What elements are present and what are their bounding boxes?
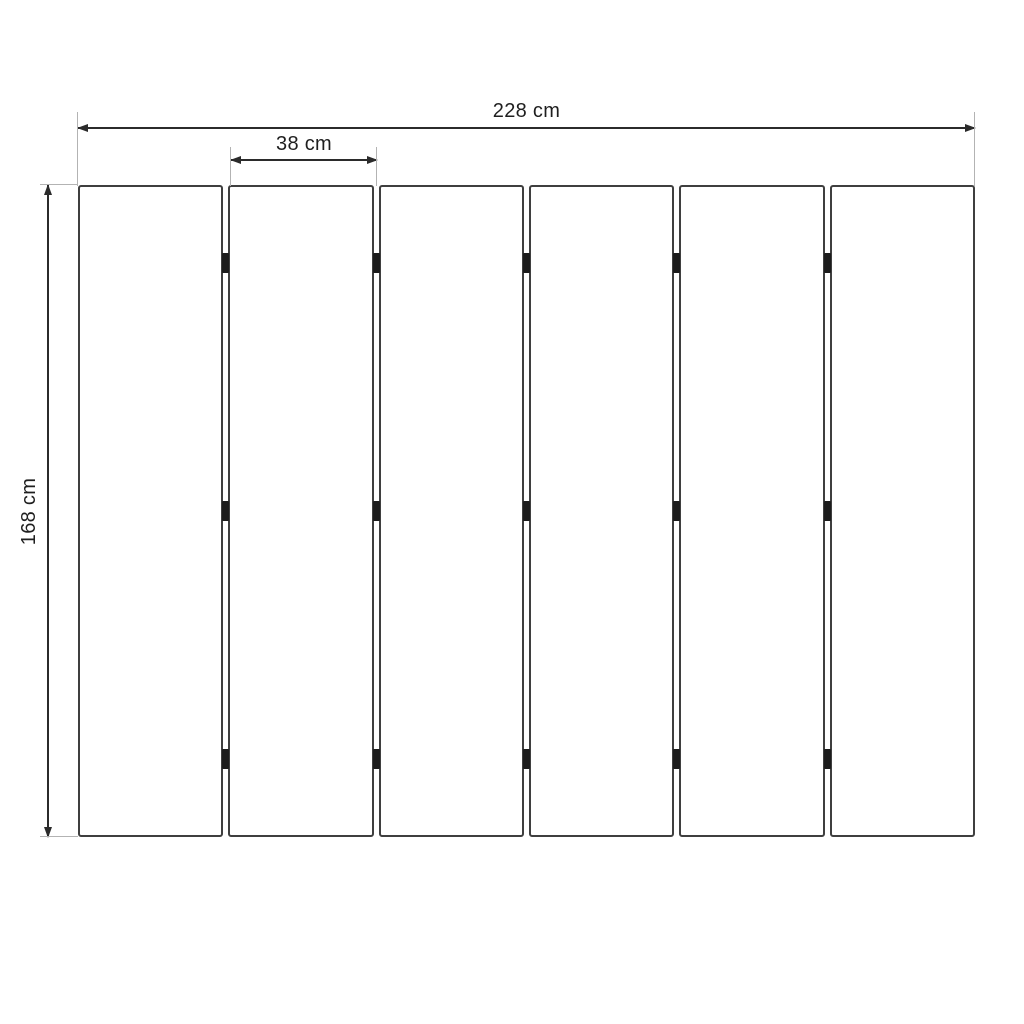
extension-line	[77, 112, 78, 186]
hinge-mark	[373, 749, 380, 769]
hinge-mark	[523, 749, 530, 769]
hinge-mark	[373, 253, 380, 273]
hinge-mark	[373, 501, 380, 521]
panel	[679, 185, 824, 837]
panels-row	[78, 185, 975, 837]
arrow-left-icon	[77, 124, 88, 132]
hinge-mark	[222, 253, 229, 273]
hinge-mark	[673, 253, 680, 273]
total-width-label: 228 cm	[78, 100, 975, 123]
height-label: 168 cm	[19, 477, 42, 544]
hinge-mark	[523, 253, 530, 273]
hinge-mark	[673, 501, 680, 521]
dimension-drawing: 228 cm 38 cm 168 cm	[0, 0, 1024, 1024]
panel-width-label: 38 cm	[231, 133, 377, 156]
hinge-mark	[523, 501, 530, 521]
arrow-left-icon	[230, 156, 241, 164]
extension-line	[40, 836, 78, 837]
extension-line	[230, 147, 231, 186]
extension-line	[974, 112, 975, 186]
panel	[830, 185, 975, 837]
hinge-mark	[824, 253, 831, 273]
panel	[379, 185, 524, 837]
hinge-mark	[824, 749, 831, 769]
hinge-mark	[824, 501, 831, 521]
hinge-mark	[673, 749, 680, 769]
dimension-line-total-width	[78, 127, 975, 129]
panel	[529, 185, 674, 837]
extension-line	[376, 147, 377, 186]
panel	[228, 185, 373, 837]
panel	[78, 185, 223, 837]
hinge-mark	[222, 749, 229, 769]
dimension-line-panel-width	[231, 159, 377, 161]
hinge-mark	[222, 501, 229, 521]
height-label-wrap: 168 cm	[10, 185, 50, 837]
extension-line	[40, 184, 78, 185]
